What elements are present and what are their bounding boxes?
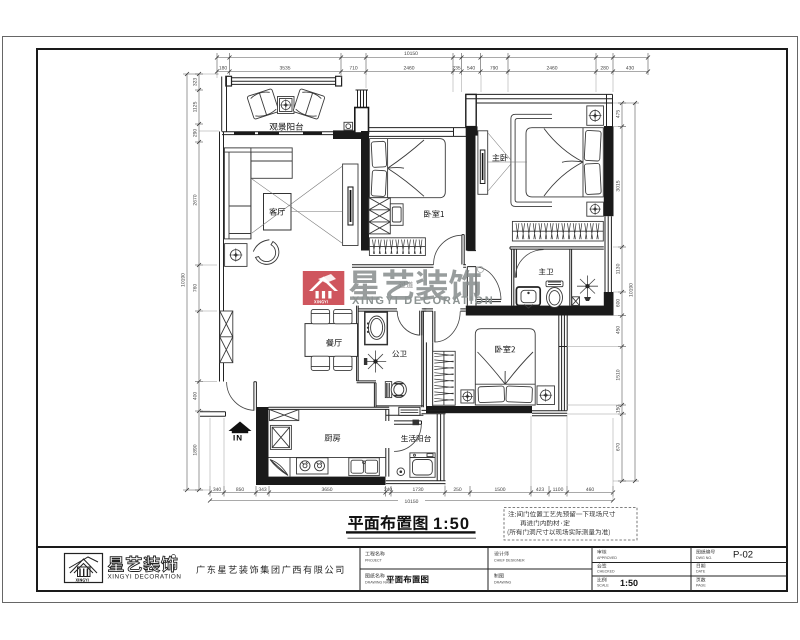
svg-text:475: 475 xyxy=(616,110,622,119)
svg-text:540: 540 xyxy=(467,66,476,72)
svg-text:DRAWING: DRAWING xyxy=(494,581,511,585)
svg-text:240: 240 xyxy=(384,487,393,493)
svg-text:1125: 1125 xyxy=(193,101,199,112)
svg-text:1890: 1890 xyxy=(193,444,199,455)
svg-text:SCALE: SCALE xyxy=(597,584,609,588)
svg-text:1100: 1100 xyxy=(553,487,564,493)
svg-text:180: 180 xyxy=(219,66,228,72)
svg-text:XINGYI DECORATION: XINGYI DECORATION xyxy=(352,295,494,307)
svg-text:400: 400 xyxy=(193,392,199,401)
svg-text:710: 710 xyxy=(349,66,358,72)
svg-text:150: 150 xyxy=(616,405,622,414)
svg-text:2460: 2460 xyxy=(403,66,414,72)
svg-text:235: 235 xyxy=(452,66,461,72)
svg-text:423: 423 xyxy=(536,487,545,493)
svg-text:250: 250 xyxy=(453,487,462,493)
svg-text:XINGYI DECORATION: XINGYI DECORATION xyxy=(108,574,182,581)
svg-text:CHECKED: CHECKED xyxy=(597,570,615,574)
svg-text:790: 790 xyxy=(490,66,499,72)
svg-text:343: 343 xyxy=(258,487,267,493)
svg-text:280: 280 xyxy=(600,66,609,72)
svg-text:10150: 10150 xyxy=(405,499,419,505)
svg-text:P-02: P-02 xyxy=(733,550,753,561)
svg-text:DATE: DATE xyxy=(696,570,706,574)
svg-text:3650: 3650 xyxy=(321,487,332,493)
svg-text:850: 850 xyxy=(236,487,245,493)
svg-text:1130: 1130 xyxy=(616,263,622,274)
svg-text:1510: 1510 xyxy=(616,369,622,380)
svg-text:760: 760 xyxy=(193,284,199,293)
svg-text:3535: 3535 xyxy=(279,66,290,72)
svg-text:3015: 3015 xyxy=(616,180,622,191)
svg-text:PAGE: PAGE xyxy=(696,584,706,588)
svg-text:10190: 10190 xyxy=(181,273,187,287)
svg-text:PROJECT: PROJECT xyxy=(365,559,383,563)
svg-text:DWG NO.: DWG NO. xyxy=(696,556,712,560)
svg-text:1:50: 1:50 xyxy=(620,578,638,588)
svg-text:340: 340 xyxy=(213,487,222,493)
svg-text:600: 600 xyxy=(616,299,622,308)
svg-text:430: 430 xyxy=(626,66,635,72)
svg-text:CHIEF DESIGNER: CHIEF DESIGNER xyxy=(494,559,525,563)
svg-text:460: 460 xyxy=(586,487,595,493)
svg-text:1500: 1500 xyxy=(494,487,505,493)
svg-text:290: 290 xyxy=(193,129,199,138)
svg-text:IN: IN xyxy=(233,434,243,443)
svg-text:1:50: 1:50 xyxy=(433,515,470,533)
svg-text:450: 450 xyxy=(616,326,622,335)
svg-text:10150: 10150 xyxy=(404,51,418,57)
svg-text:670: 670 xyxy=(616,443,622,452)
svg-text:10190: 10190 xyxy=(629,283,635,297)
svg-text:323: 323 xyxy=(193,78,199,87)
svg-text:1730: 1730 xyxy=(412,487,423,493)
svg-text:APPROVED: APPROVED xyxy=(597,556,617,560)
svg-text:2460: 2460 xyxy=(546,66,557,72)
svg-text:2670: 2670 xyxy=(193,194,199,205)
